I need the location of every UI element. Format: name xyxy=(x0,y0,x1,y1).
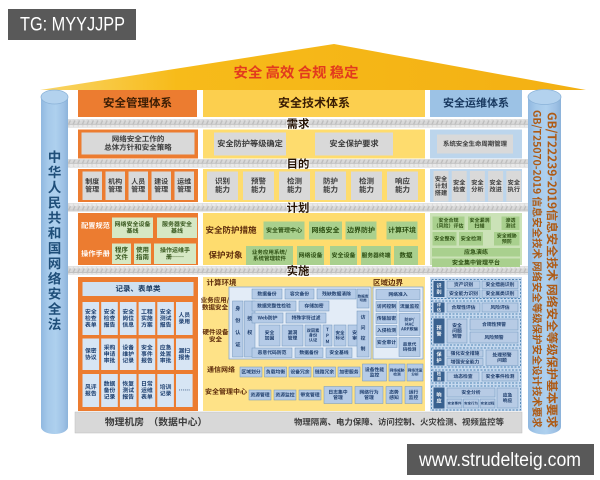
svg-text:www.strudelteig.com: www.strudelteig.com xyxy=(418,449,581,471)
svg-text:TG: MYYJJPP: TG: MYYJJPP xyxy=(20,14,125,36)
